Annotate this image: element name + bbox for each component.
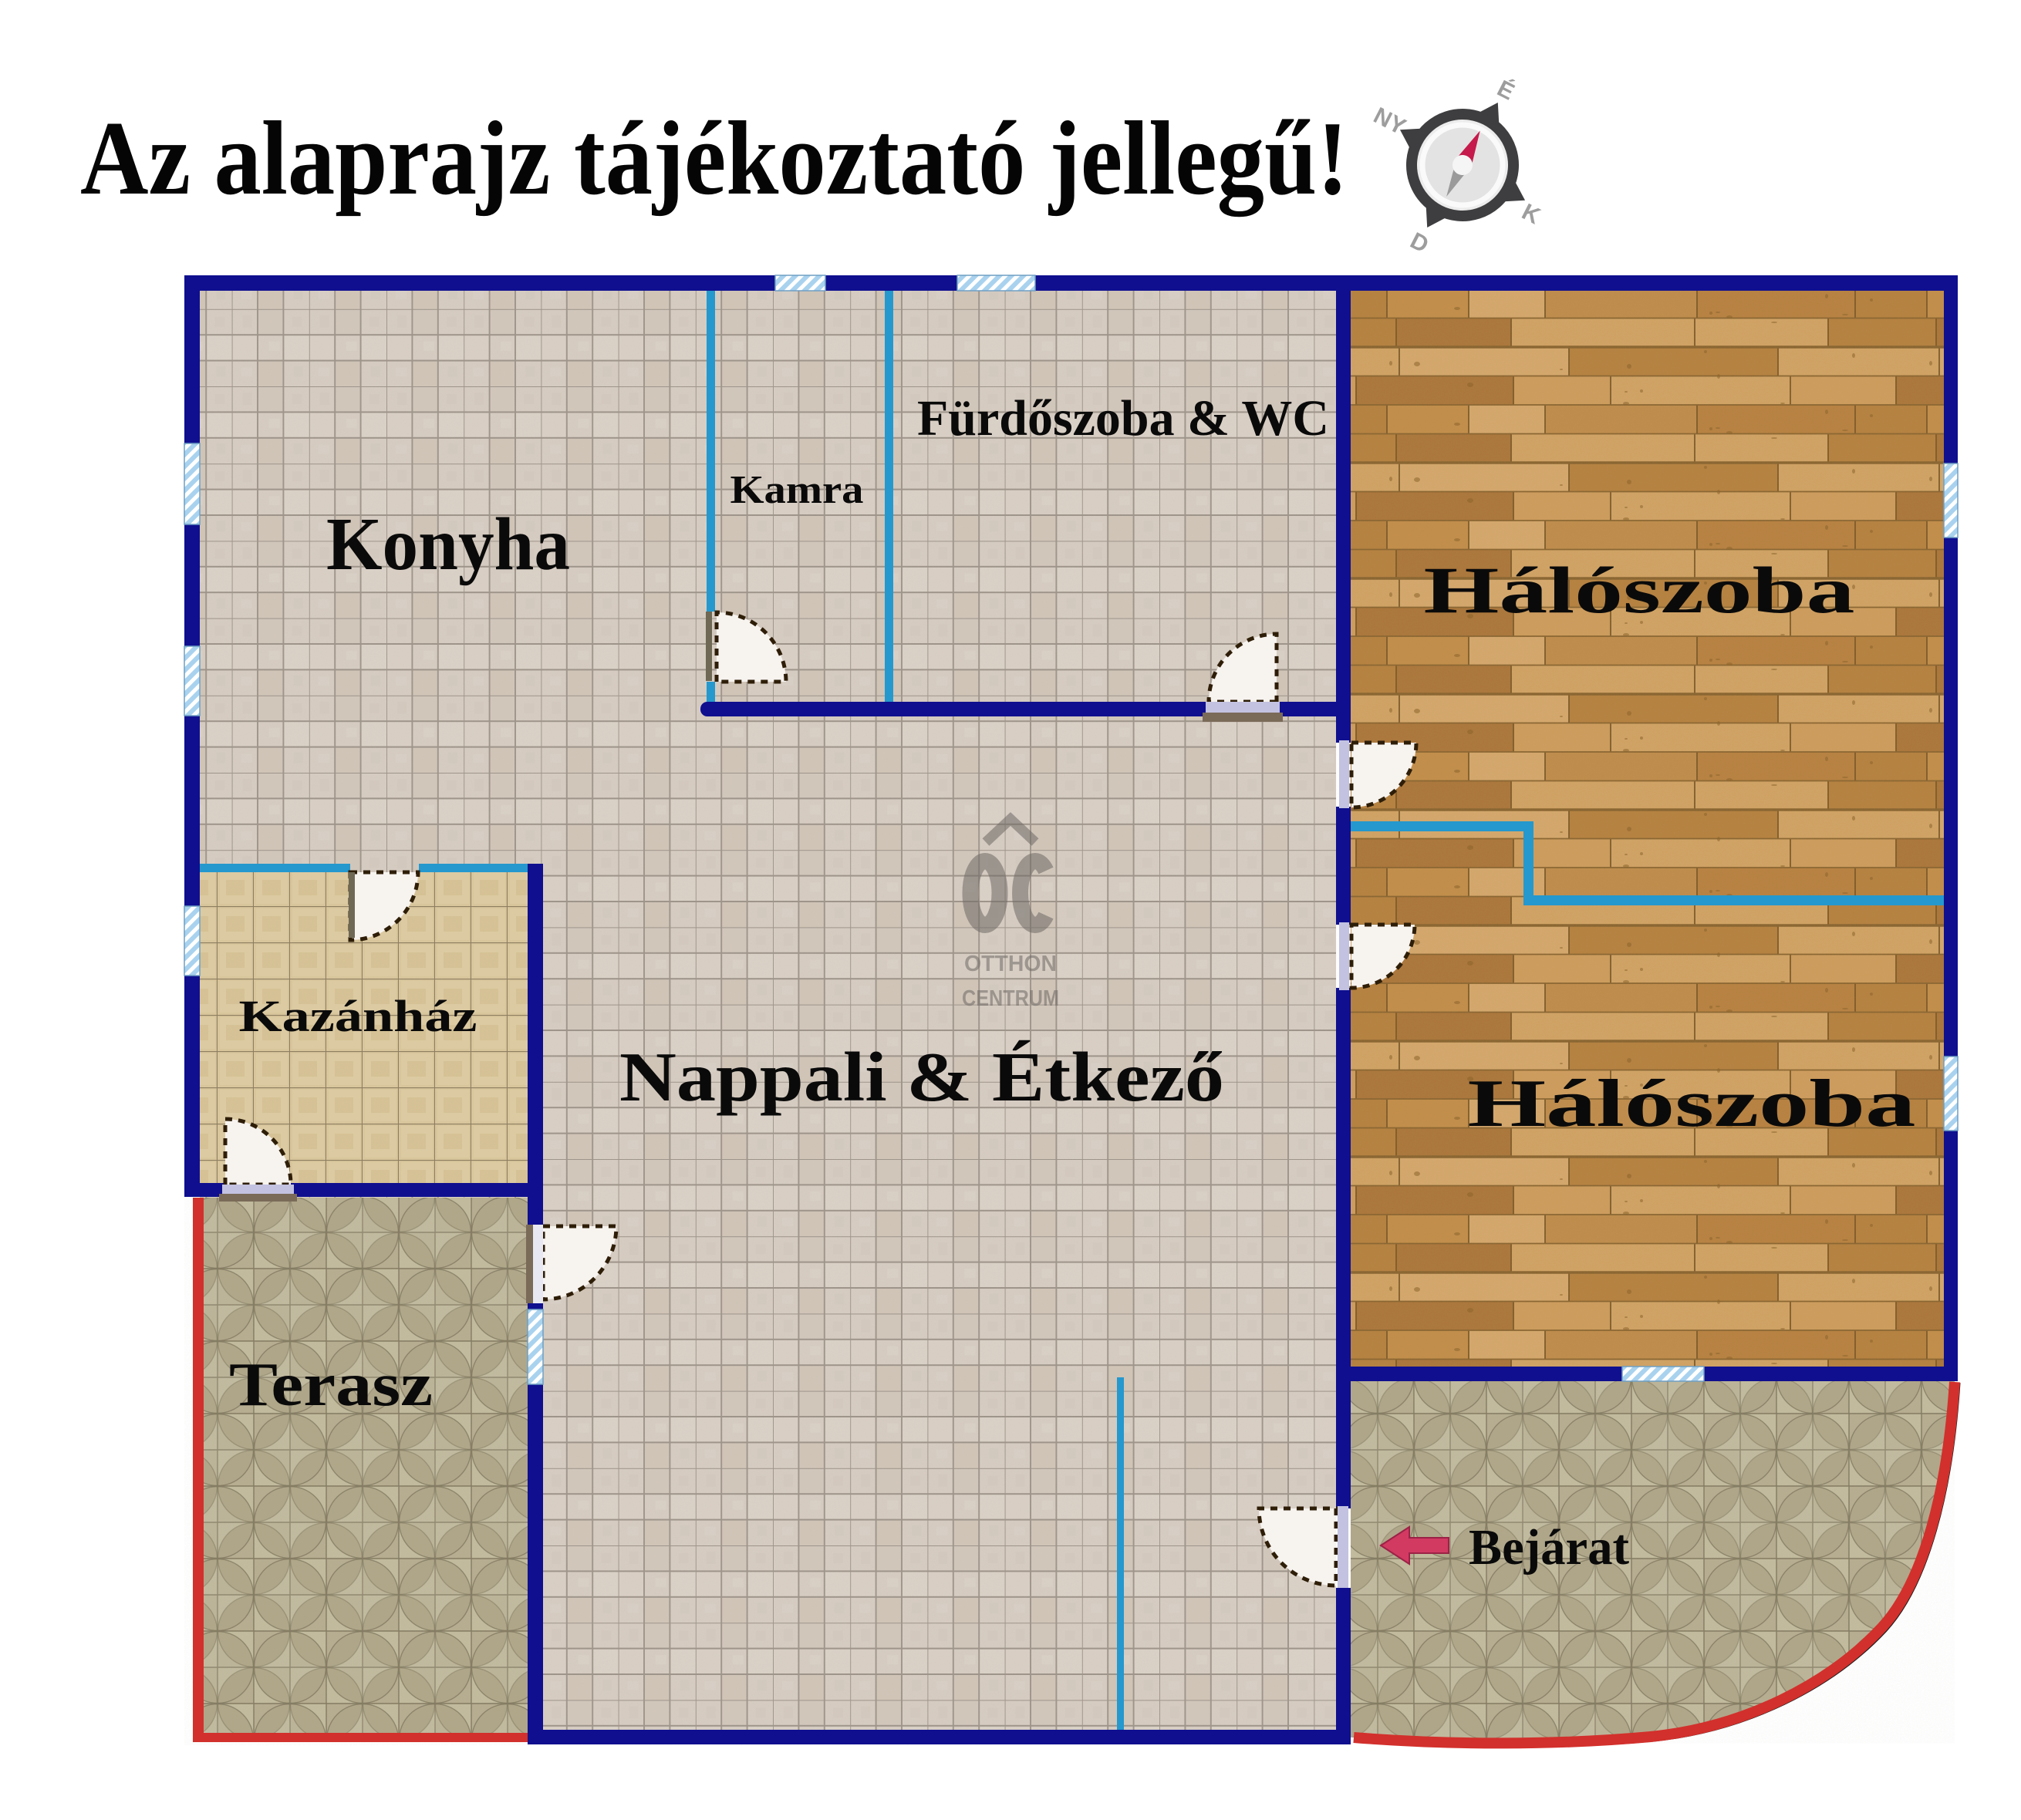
svg-text:K: K <box>1518 199 1545 229</box>
svg-text:Fürdőszoba & WC: Fürdőszoba & WC <box>917 390 1329 447</box>
svg-text:Terasz: Terasz <box>229 1350 433 1419</box>
svg-text:É: É <box>1493 75 1519 105</box>
svg-text:Nappali & Étkező: Nappali & Étkező <box>619 1038 1224 1116</box>
svg-text:OTTHON: OTTHON <box>964 952 1057 976</box>
svg-text:Kamra: Kamra <box>730 468 864 512</box>
svg-text:Hálószoba: Hálószoba <box>1468 1067 1916 1141</box>
svg-text:CENTRUM: CENTRUM <box>962 986 1059 1011</box>
svg-text:Hálószoba: Hálószoba <box>1424 553 1855 627</box>
svg-text:Kazánház: Kazánház <box>239 991 477 1041</box>
svg-text:Konyha: Konyha <box>326 503 570 585</box>
svg-text:Bejárat: Bejárat <box>1469 1519 1629 1576</box>
svg-text:D: D <box>1406 228 1432 258</box>
svg-text:Az alaprajz tájékoztató jelleg: Az alaprajz tájékoztató jellegű! <box>80 99 1348 217</box>
